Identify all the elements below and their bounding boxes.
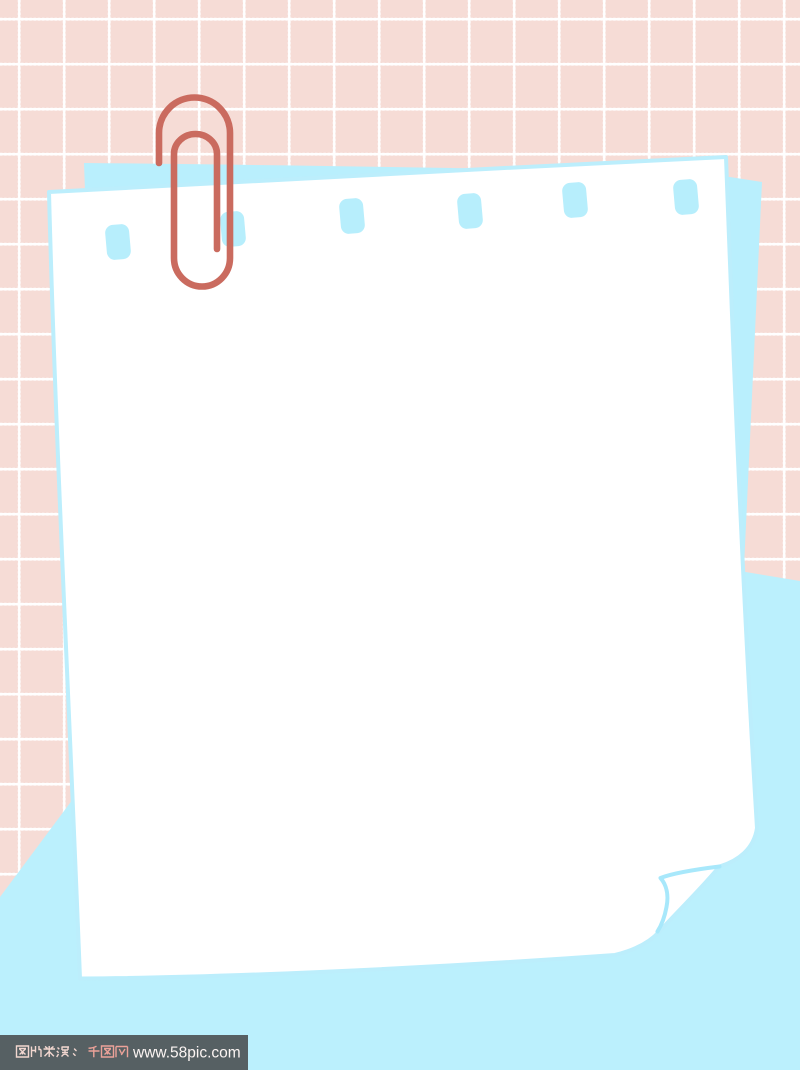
svg-text:www.58pic.com: www.58pic.com [132,1045,241,1062]
